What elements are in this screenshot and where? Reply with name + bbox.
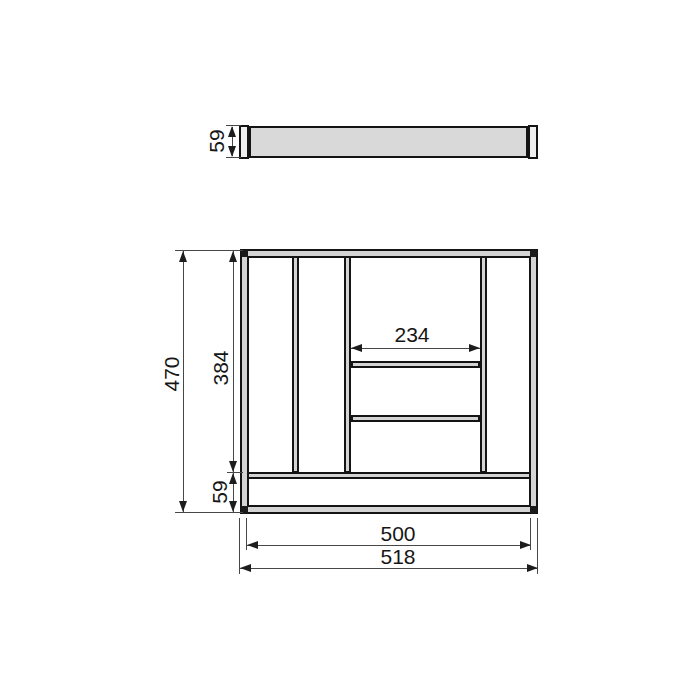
front-view-left-end-cap: [239, 125, 249, 159]
divider-horizontal-center-lower: [351, 415, 480, 422]
total-width-dimension-line: [240, 568, 538, 569]
front-view-right-end-cap: [528, 125, 538, 159]
front-height-dimension-label: 59: [206, 129, 227, 152]
arrowhead-left-icon: [247, 541, 258, 549]
arrowhead-down-icon: [228, 146, 236, 157]
divider-vertical-1: [292, 256, 299, 473]
front-view-body: [249, 126, 528, 158]
inner-depth-dimension-line: [233, 251, 234, 472]
arrowhead-up-icon: [228, 126, 236, 137]
corner-block-top-right: [530, 250, 537, 257]
corner-block-bottom-right: [530, 506, 537, 513]
front-height-extension-line-bottom: [226, 157, 241, 158]
divider-vertical-2: [344, 256, 351, 473]
divider-horizontal-center-upper: [351, 361, 480, 368]
arrowhead-right-icon: [527, 564, 538, 572]
plan-extension-line-bottom: [175, 512, 243, 513]
arrowhead-up-icon: [229, 251, 237, 262]
inner-depth-dimension-label: 384: [210, 350, 231, 385]
arrowhead-right-icon: [469, 344, 480, 352]
total-depth-dimension-label: 470: [161, 356, 182, 391]
divider-horizontal-full-width: [247, 472, 531, 479]
plan-view-inner-area: [247, 256, 531, 507]
inner-width-dimension-label: 500: [380, 523, 415, 544]
divider-vertical-3: [480, 256, 487, 473]
total-depth-dimension-line: [183, 251, 184, 512]
arrowhead-down-icon: [229, 461, 237, 472]
arrowhead-left-icon: [351, 344, 362, 352]
center-width-dimension-line: [351, 348, 480, 349]
center-width-dimension-label: 234: [394, 324, 429, 345]
total-width-dimension-label: 518: [380, 546, 415, 567]
front-channel-dimension-label: 59: [209, 480, 230, 503]
arrowhead-down-icon: [179, 501, 187, 512]
arrowhead-up-icon: [179, 251, 187, 262]
technical-drawing-canvas: 59 470 384 59 234 500 518: [0, 0, 700, 700]
corner-block-top-left: [241, 250, 248, 257]
arrowhead-left-icon: [240, 564, 251, 572]
arrowhead-right-icon: [520, 541, 531, 549]
